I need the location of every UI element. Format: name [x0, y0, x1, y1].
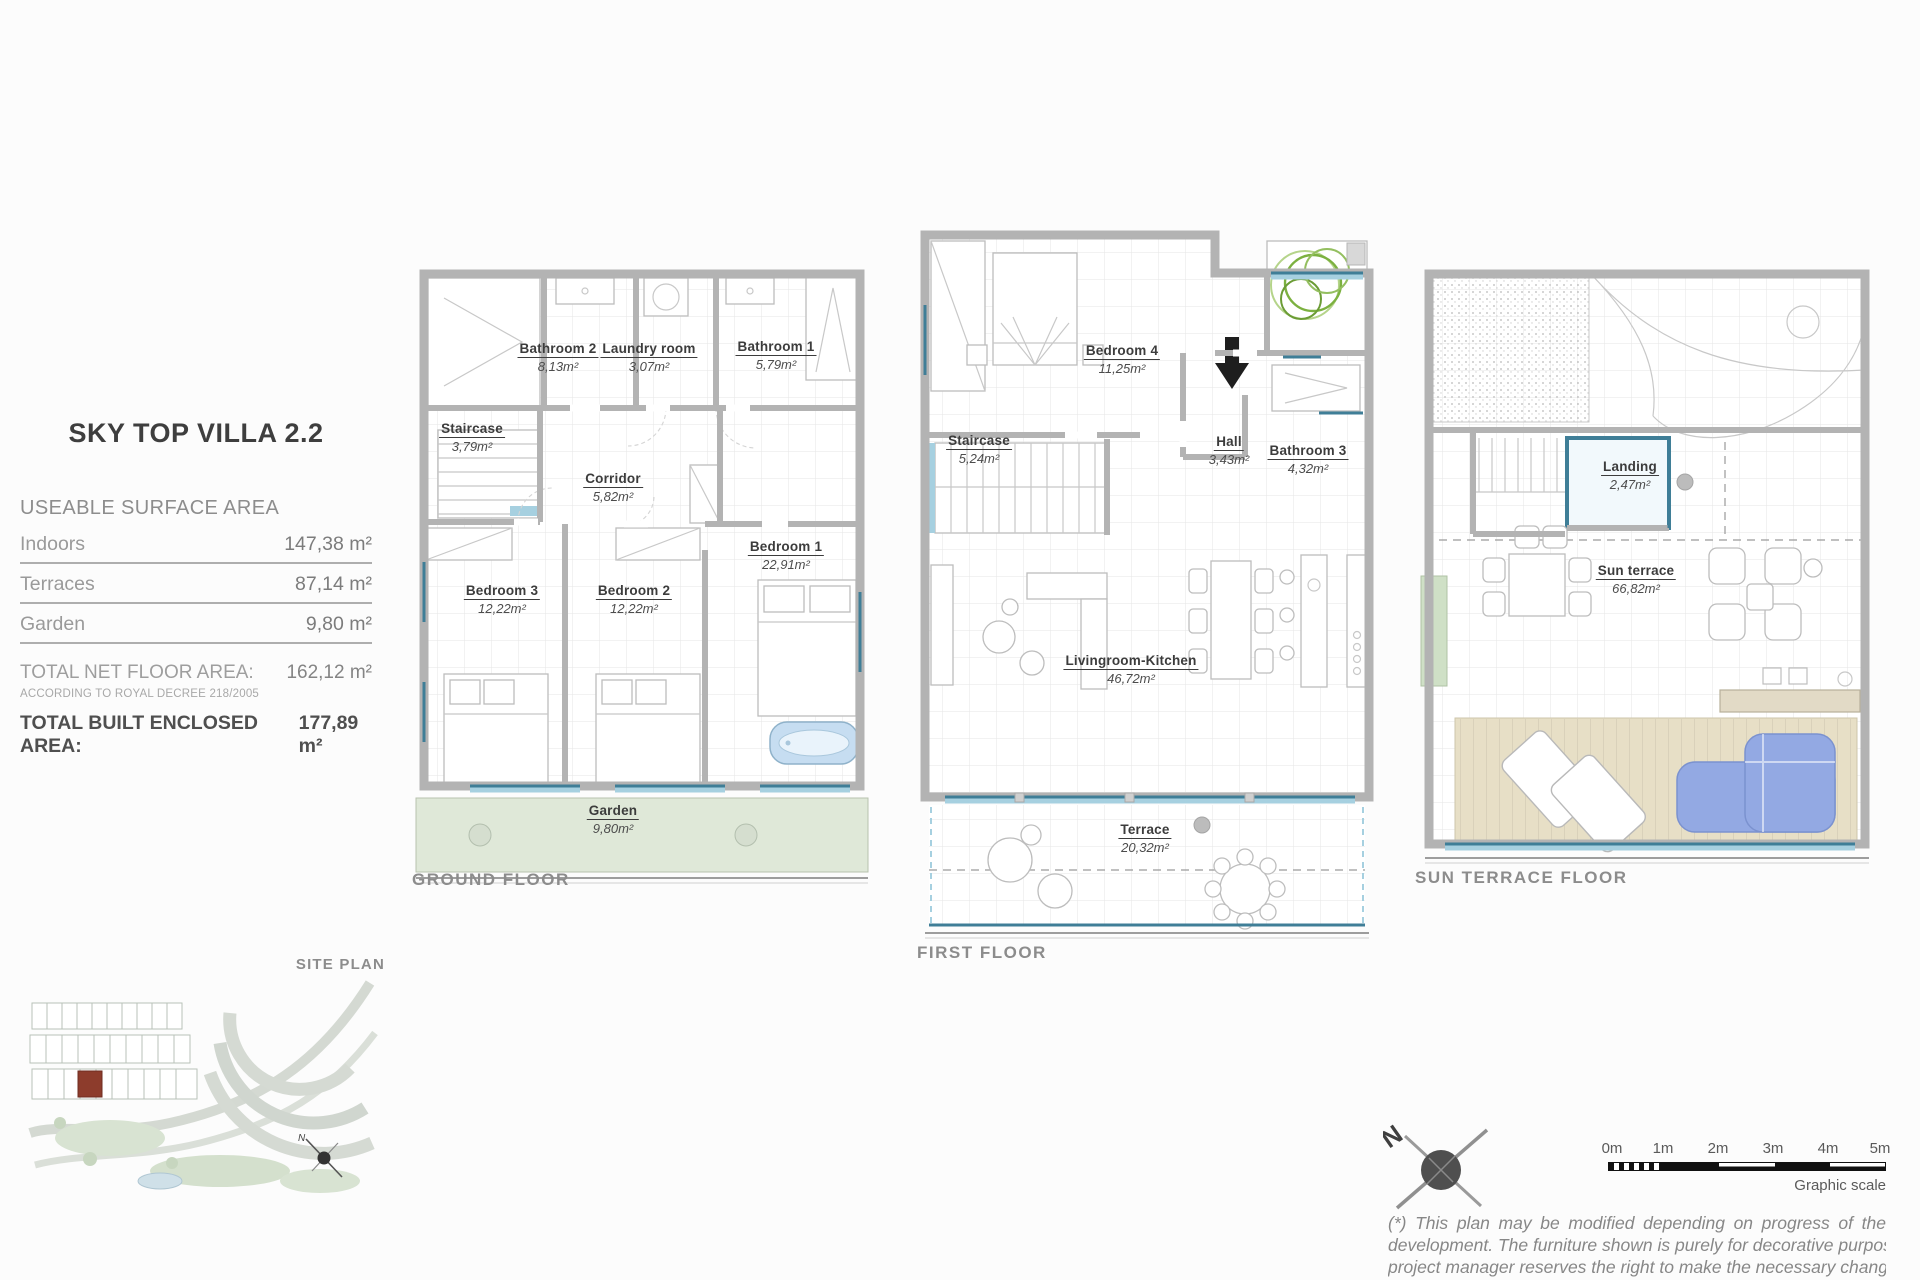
room-label-corridor: Corridor 5,82m² — [583, 470, 643, 504]
row-label: Indoors — [20, 533, 85, 556]
total-net-row: TOTAL NET FLOOR AREA: 162,12 m² — [20, 662, 372, 684]
room-label-garden: Garden 9,80m² — [587, 802, 639, 836]
row-label: Terraces — [20, 573, 95, 596]
north-compass: N — [1383, 1120, 1503, 1220]
floor-caption-first: FIRST FLOOR — [917, 943, 1047, 963]
row-value: 87,14 m² — [295, 573, 372, 596]
site-plan: SITE PLAN N — [20, 956, 385, 1218]
room-label-bathroom1: Bathroom 1 5,79m² — [735, 338, 816, 372]
sun-terrace-floor-plan: Landing 2,47m² Sun terrace 66,82m² SUN T… — [1415, 262, 1880, 902]
room-label-bedroom3: Bedroom 3 12,22m² — [464, 582, 540, 616]
row-value: 9,80 m² — [306, 613, 372, 636]
bathroom-closet — [1272, 365, 1360, 411]
bathtub — [770, 722, 858, 764]
page-title: SKY TOP VILLA 2.2 — [20, 418, 372, 449]
patio-plants — [1267, 241, 1367, 353]
total-net-value: 162,12 m² — [286, 662, 372, 684]
wardrobe — [426, 528, 512, 560]
bed — [758, 580, 856, 716]
closet — [931, 241, 985, 391]
garden-tree — [469, 824, 491, 846]
first-floor-drawing — [915, 225, 1380, 970]
room-label-bedroom1: Bedroom 1 22,91m² — [748, 538, 824, 572]
ground-floor-plan: Bathroom 2 8,13m² Laundry room 3,07m² Ba… — [410, 262, 875, 902]
disclaimer-line: (*) This plan may be modified depending … — [1388, 1212, 1886, 1234]
garden-tree — [735, 824, 757, 846]
room-label-sun-terrace: Sun terrace 66,82m² — [1596, 562, 1676, 596]
room-label-terrace: Terrace 20,32m² — [1118, 821, 1171, 855]
room-label-landing: Landing 2,47m² — [1601, 458, 1659, 492]
sideboard — [931, 565, 953, 685]
corridor-closet — [690, 465, 720, 523]
scale-bar: 0m 1m 2m 3m 4m 5m Graphic scale — [1608, 1140, 1886, 1194]
bathroom-sink — [556, 278, 614, 304]
room-label-staircase: Staircase 5,24m² — [946, 432, 1012, 466]
compass-icon: N — [1383, 1120, 1503, 1220]
surface-area-table: Indoors 147,38 m² Terraces 87,14 m² Gard… — [20, 524, 372, 644]
scale-tick: 5m — [1870, 1140, 1891, 1157]
surface-row-terraces: Terraces 87,14 m² — [20, 564, 372, 604]
bed — [444, 674, 548, 786]
disclaimer-line: development. The furniture shown is pure… — [1388, 1234, 1886, 1256]
room-label-livingroom: Livingroom-Kitchen 46,72m² — [1063, 652, 1198, 686]
floor-caption-ground: GROUND FLOOR — [412, 870, 570, 890]
total-net-label: TOTAL NET FLOOR AREA: — [20, 662, 254, 684]
scale-tick: 1m — [1653, 1140, 1674, 1157]
total-built-label: TOTAL BUILT ENCLOSED AREA: — [20, 712, 299, 758]
scale-tick: 4m — [1818, 1140, 1839, 1157]
scale-tick: 3m — [1763, 1140, 1784, 1157]
site-north-label: N — [298, 1133, 306, 1144]
room-label-staircase: Staircase 3,79m² — [439, 420, 505, 454]
highlighted-unit — [78, 1071, 102, 1097]
room-label-hall: Hall 3,43m² — [1209, 433, 1249, 467]
washing-machine — [644, 278, 688, 316]
site-plan-label: SITE PLAN — [20, 956, 385, 973]
site-plan-drawing: N — [20, 973, 385, 1213]
scale-ticks: 0m 1m 2m 3m 4m 5m — [1608, 1140, 1886, 1158]
scale-caption: Graphic scale — [1608, 1177, 1886, 1194]
surface-row-indoors: Indoors 147,38 m² — [20, 524, 372, 564]
wardrobe — [616, 528, 700, 560]
room-label-bathroom3: Bathroom 3 4,32m² — [1267, 442, 1348, 476]
first-floor-plan: Bedroom 4 11,25m² Staircase 5,24m² Hall … — [915, 225, 1380, 970]
bathroom-sink — [726, 278, 774, 304]
royal-decree-note: ACCORDING TO ROYAL DECREE 218/2005 — [20, 688, 372, 700]
row-label: Garden — [20, 613, 85, 636]
room-label-bedroom2: Bedroom 2 12,22m² — [596, 582, 672, 616]
bed — [596, 674, 700, 786]
room-label-bathroom2: Bathroom 2 8,13m² — [517, 340, 598, 374]
floor-caption-sun-terrace: SUN TERRACE FLOOR — [1415, 868, 1628, 888]
scale-bar-graphic — [1608, 1162, 1886, 1171]
scale-tick: 0m — [1602, 1140, 1623, 1157]
surface-area-header: USEABLE SURFACE AREA — [20, 497, 372, 520]
disclaimer-line: project manager reserves the right to ma… — [1388, 1256, 1886, 1278]
row-value: 147,38 m² — [284, 533, 372, 556]
room-label-bedroom4: Bedroom 4 11,25m² — [1084, 342, 1160, 376]
room-label-laundry: Laundry room 3,07m² — [600, 340, 697, 374]
total-built-value: 177,89 m² — [299, 712, 380, 758]
scale-tick: 2m — [1708, 1140, 1729, 1157]
surface-row-garden: Garden 9,80 m² — [20, 604, 372, 644]
total-built-row: TOTAL BUILT ENCLOSED AREA: 177,89 m² — [20, 712, 380, 758]
disclaimer: (*) This plan may be modified depending … — [1388, 1212, 1886, 1280]
dining-table — [1189, 561, 1273, 679]
plan-sheet: SKY TOP VILLA 2.2 USEABLE SURFACE AREA I… — [0, 0, 1920, 1280]
